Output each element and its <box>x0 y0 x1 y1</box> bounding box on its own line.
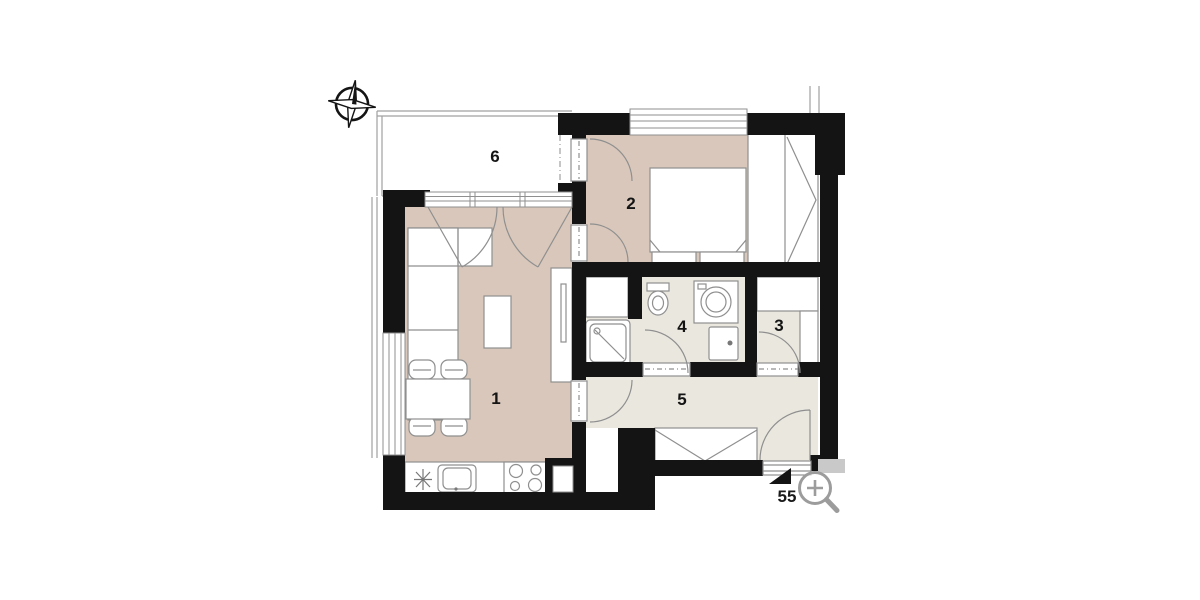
bedroom-window <box>630 109 747 135</box>
dining-table <box>406 379 470 419</box>
fridge-symbol <box>414 469 432 490</box>
washing-machine <box>694 281 738 323</box>
kitchen-shaft <box>553 466 573 492</box>
floor-plan-page: 1 2 3 4 5 6 55 <box>0 0 1200 600</box>
living-room-glazing <box>425 192 572 207</box>
zoom-in-icon[interactable] <box>792 466 848 522</box>
cooktop <box>504 462 548 494</box>
toilet <box>647 283 669 315</box>
room-label-bedroom: 2 <box>626 194 635 214</box>
shower <box>586 320 630 366</box>
tv-unit <box>551 268 572 382</box>
double-bed <box>650 168 746 266</box>
room-label-balcony: 6 <box>490 147 499 167</box>
room-label-storage: 3 <box>774 316 783 336</box>
coffee-table <box>484 296 511 348</box>
vanity-cabinet <box>709 327 738 360</box>
compass-icon <box>325 77 379 131</box>
bedroom-wardrobe <box>748 133 818 268</box>
living-room-window <box>383 333 405 455</box>
room-label-bathroom: 4 <box>677 317 686 337</box>
kitchen-counter <box>405 462 553 494</box>
shaft <box>586 277 628 317</box>
room-label-hallway: 5 <box>677 390 686 410</box>
kitchen-sink <box>438 465 476 492</box>
hallway-wardrobe <box>655 428 757 462</box>
room-label-living: 1 <box>491 389 500 409</box>
floor-plan-drawing <box>0 0 1200 600</box>
